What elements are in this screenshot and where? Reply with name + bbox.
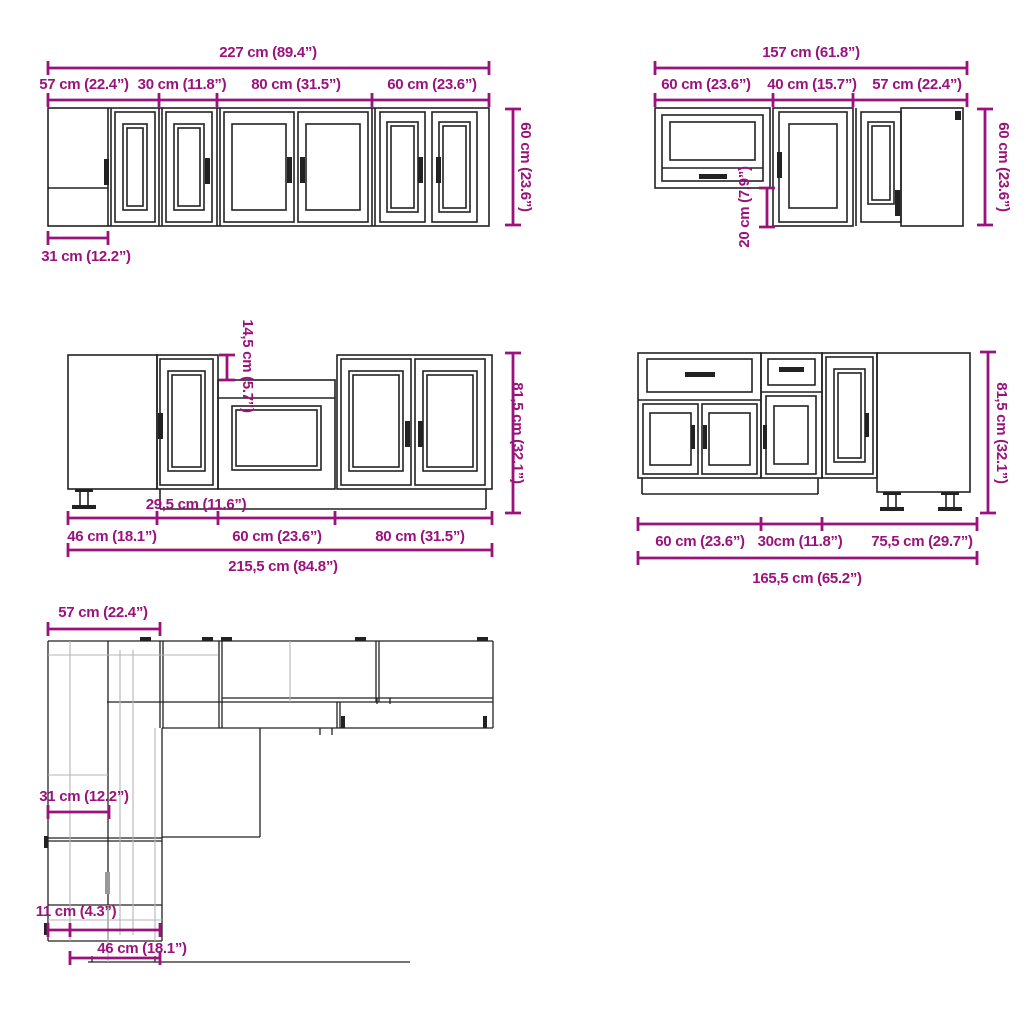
dim-label-segment: 60 cm (23.6”) [232,528,321,546]
dim-label-segment: 30 cm (11.8”) [138,76,227,94]
dim-label-segment: 80 cm (31.5”) [251,76,340,94]
dim-label-sink-drop: 14,5 cm (5.7”) [238,319,256,412]
dim-label-height: 60 cm (23.6”) [994,122,1012,211]
dim-label-height: 81,5 cm (32.1”) [508,382,526,483]
dim-label-segment: 46 cm (18.1”) [67,528,156,546]
dim-label-wall-depth: 31 cm (12.2”) [39,788,128,806]
dim-label-height: 81,5 cm (32.1”) [992,382,1010,483]
dim-label-segment: 60 cm (23.6”) [661,76,750,94]
dim-label-segment: 75,5 cm (29.7”) [871,533,972,551]
base-run-right-drawing [638,353,970,511]
dim-label-height: 60 cm (23.6”) [516,122,534,211]
dim-label-corner-width: 46 cm (18.1”) [97,940,186,958]
dim-label-door-width: 29,5 cm (11.6”) [146,496,247,514]
dim-label-segment: 57 cm (22.4”) [39,76,128,94]
dim-label-segment: 80 cm (31.5”) [375,528,464,546]
dim-label-offset: 20 cm (7.9”) [736,166,754,247]
dim-label-total-width: 215,5 cm (84.8”) [228,558,337,576]
dim-label-total-width: 227 cm (89.4”) [219,44,317,62]
door-handles-and-feet [72,413,423,509]
dim-label-total-width: 157 cm (61.8”) [762,44,860,62]
dim-label-segment: 60 cm (23.6”) [655,533,744,551]
dim-label-segment: 57 cm (22.4”) [872,76,961,94]
kitchen-cabinet-dimension-diagram: 227 cm (89.4”) 57 cm (22.4”) 30 cm (11.8… [0,0,1024,1024]
wall-run-right-drawing [655,108,963,226]
dim-label-blind-width: 31 cm (12.2”) [41,248,130,266]
wall-run-left-drawing [48,108,489,226]
drawer-handles-and-feet [685,367,962,511]
dim-label-total-width: 165,5 cm (65.2”) [752,570,861,588]
dim-label-filler: 11 cm (4.3”) [36,903,117,921]
base-run-left-drawing [68,355,492,509]
dim-label-segment: 40 cm (15.7”) [767,76,856,94]
dim-label-segment: 30cm (11.8”) [758,533,843,551]
dim-label-segment: 60 cm (23.6”) [387,76,476,94]
dim-label-arm-width: 57 cm (22.4”) [58,604,147,622]
hinge-marks [44,637,488,935]
